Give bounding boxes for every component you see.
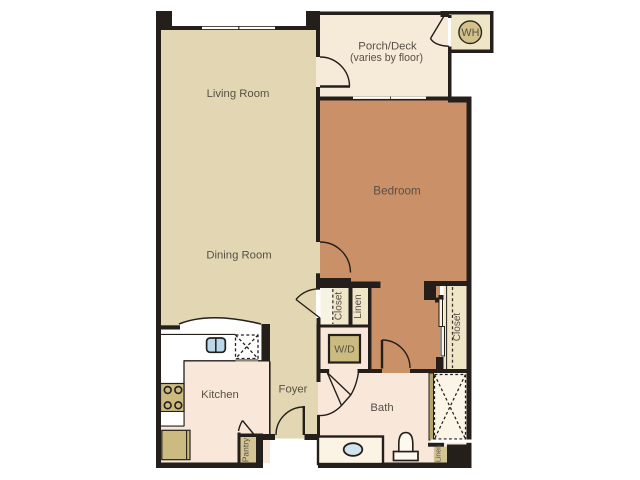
svg-text:Foyer: Foyer <box>279 383 308 395</box>
svg-text:Linen: Linen <box>353 294 364 318</box>
svg-text:Bedroom: Bedroom <box>373 185 420 198</box>
svg-text:Bath: Bath <box>370 402 393 414</box>
svg-text:Kitchen: Kitchen <box>201 389 239 401</box>
svg-text:Porch/Deck: Porch/Deck <box>358 41 417 53</box>
svg-text:Pantry: Pantry <box>241 437 251 462</box>
svg-text:(varies by floor): (varies by floor) <box>350 52 423 64</box>
svg-text:Living Room: Living Room <box>207 88 270 100</box>
svg-text:Linen: Linen <box>436 445 443 462</box>
svg-text:Closet: Closet <box>334 292 345 321</box>
svg-text:W/D: W/D <box>334 344 355 356</box>
svg-text:Dining Room: Dining Room <box>206 250 271 262</box>
svg-text:WH: WH <box>461 27 479 39</box>
svg-text:Closet: Closet <box>452 313 463 342</box>
